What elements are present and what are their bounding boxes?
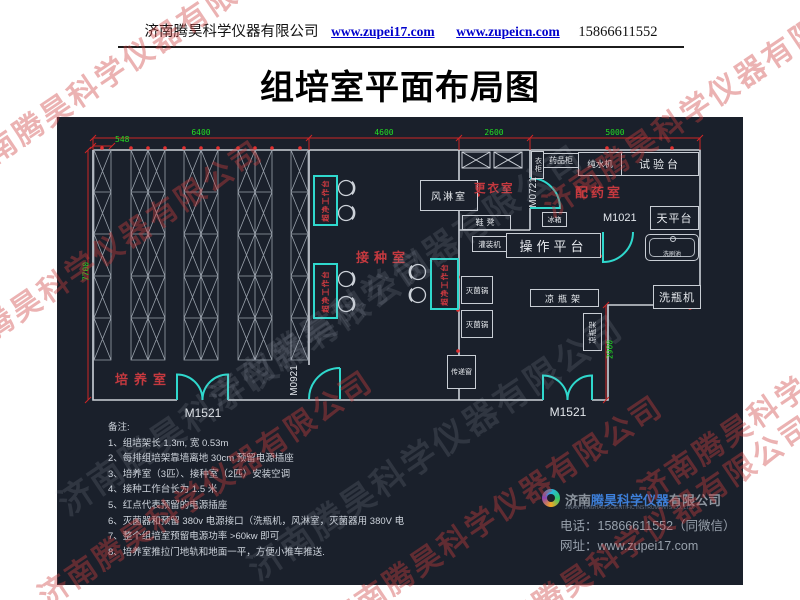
door-label-m1521-right: M1521 xyxy=(543,405,593,419)
room-label-dispensing: 配药室 xyxy=(575,182,623,201)
header: 济南腾昊科学仪器有限公司 www.zupei17.com www.zupeicn… xyxy=(118,20,684,48)
notes-title: 备注: xyxy=(108,420,404,436)
clean-bench-3-label: 超净工作台 xyxy=(439,263,450,306)
note-item-2: 2、每排组培架靠墙离地 30cm 预留电源插座 xyxy=(108,451,404,467)
door-label-m0721: M0721 xyxy=(528,177,539,208)
notes-block: 备注: 1、组培架长 1.3m, 宽 0.53m 2、每排组培架靠墙离地 30c… xyxy=(108,420,404,560)
lab-bench-box: 纯水机 试验台 xyxy=(578,152,699,176)
door-label-m1521-left: M1521 xyxy=(177,406,229,420)
dim-rack-548: 548 xyxy=(115,135,129,144)
water-machine-box: 纯水机 xyxy=(579,153,622,175)
balance-table-box: 天平台 xyxy=(650,206,699,230)
pass-window-box: 传递窗 xyxy=(447,355,476,389)
header-link-zupeicn[interactable]: www.zupeicn.com xyxy=(456,24,560,39)
note-item-7: 7、整个组培室预留电源功率 >60kw 即可 xyxy=(108,529,404,545)
dim-top-5000: 5000 xyxy=(595,128,635,137)
dim-right-2900: 2900 xyxy=(606,334,615,366)
door-label-m1021: M1021 xyxy=(603,212,637,224)
footer-phone: 电话：15866611552（同微信） xyxy=(560,515,736,534)
room-label-inoculation: 接种室 xyxy=(356,247,410,266)
header-link-zupei17[interactable]: www.zupei17.com xyxy=(331,24,435,39)
bottle-rack-box-v: 凉瓶架 xyxy=(583,313,602,351)
clean-bench-1-label: 超净工作台 xyxy=(320,179,331,222)
note-item-4: 4、接种工作台长为 1.5 米 xyxy=(108,482,404,498)
header-company: 济南腾昊科学仪器有限公司 xyxy=(144,24,318,40)
air-shower-box: 风淋室 xyxy=(420,180,478,211)
clean-bench-2-label: 超净工作台 xyxy=(320,270,331,313)
note-item-1: 1、组培架长 1.3m, 宽 0.53m xyxy=(108,436,404,452)
note-item-8: 8、培养室推拉门地轨和地面一平，方便小推车推送. xyxy=(108,545,404,561)
bottle-rack-box-h: 凉瓶架 xyxy=(530,289,599,307)
dim-top-2600: 2600 xyxy=(474,128,514,137)
medicine-cabinet-box: 药品柜 xyxy=(543,153,579,168)
test-bench-label: 试验台 xyxy=(622,153,698,175)
dim-top-6400: 6400 xyxy=(181,128,221,137)
clean-bench-1: 超净工作台 xyxy=(313,175,338,226)
dim-left-7700: 7700 xyxy=(82,256,91,288)
floorplan-canvas: 6400 4600 2600 5000 548 7700 2900 培养室 接种… xyxy=(57,117,743,585)
shoe-bench-box: 鞋凳 xyxy=(462,215,511,230)
sink-faucet-icon xyxy=(670,236,676,242)
company-logo-english: JINAN TENGHAO SCIENTIFIC INSTRUMENTS CO.… xyxy=(565,505,694,511)
page-title: 组培室平面布局图 xyxy=(0,60,800,109)
bottle-washer-box: 洗瓶机 xyxy=(653,285,701,309)
sterilizer-box-2: 灭菌锅 xyxy=(461,310,493,338)
door-label-m0921: M0921 xyxy=(289,365,300,396)
clean-bench-2: 超净工作台 xyxy=(313,263,338,319)
page: 济南腾昊科学仪器有限公司 www.zupei17.com www.zupeicn… xyxy=(0,0,800,600)
grid-boxes xyxy=(462,152,522,168)
room-label-changing: 更衣室 xyxy=(474,180,515,196)
wardrobe-box: 衣柜 xyxy=(531,151,544,179)
filling-machine-box: 灌装机 xyxy=(472,236,507,252)
clean-bench-3: 超净工作台 xyxy=(430,258,459,310)
note-item-6: 6、灭菌器和预留 380v 电源接口（洗瓶机，风淋室，灭菌器用 380V 电 xyxy=(108,514,404,530)
note-item-5: 5、红点代表预留的电源插座 xyxy=(108,498,404,514)
bottle-rack-v-label: 凉瓶架 xyxy=(587,321,598,344)
sterilizer-box-1: 灭菌锅 xyxy=(461,276,493,304)
room-label-culture: 培养室 xyxy=(115,369,172,388)
sink-box: 洗刷池 xyxy=(645,234,699,261)
sink-label: 洗刷池 xyxy=(646,249,698,258)
dim-top-4600: 4600 xyxy=(364,128,404,137)
footer-website: 网址：www.zupei17.com xyxy=(560,535,698,554)
fridge-box: 冰箱 xyxy=(542,212,567,227)
operation-platform-box: 操作平台 xyxy=(506,233,601,258)
company-logo-icon xyxy=(542,489,560,507)
note-item-3: 3、培养室（3匹）、接种室（2匹）安装空调 xyxy=(108,467,404,483)
header-phone: 15866611552 xyxy=(578,24,657,40)
